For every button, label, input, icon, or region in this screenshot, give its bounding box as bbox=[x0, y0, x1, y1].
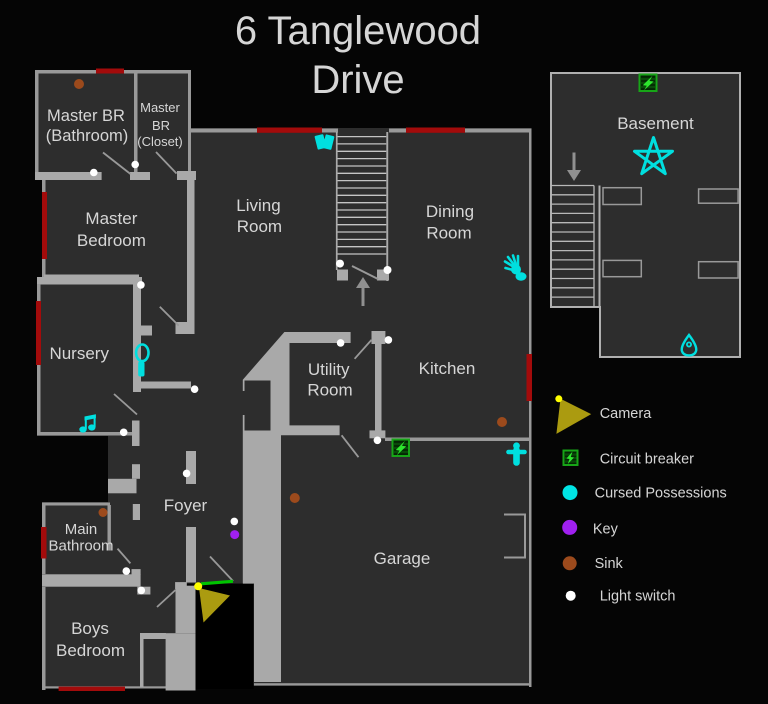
svg-text:Nursery: Nursery bbox=[49, 344, 109, 363]
svg-text:Sink: Sink bbox=[595, 556, 624, 572]
svg-text:Foyer: Foyer bbox=[164, 496, 208, 515]
svg-text:Utility: Utility bbox=[308, 360, 350, 379]
svg-text:Living: Living bbox=[236, 196, 280, 215]
svg-text:Key: Key bbox=[593, 522, 619, 538]
svg-text:Bathroom: Bathroom bbox=[48, 538, 113, 555]
svg-text:BR: BR bbox=[152, 118, 170, 133]
svg-text:Camera: Camera bbox=[600, 406, 653, 422]
svg-text:Boys: Boys bbox=[71, 619, 109, 638]
svg-text:Room: Room bbox=[307, 381, 352, 400]
svg-text:Basement: Basement bbox=[617, 114, 694, 133]
svg-text:Cursed Possessions: Cursed Possessions bbox=[595, 486, 727, 502]
svg-text:Main: Main bbox=[65, 521, 98, 538]
svg-text:(Bathroom): (Bathroom) bbox=[46, 127, 129, 145]
svg-text:Dining: Dining bbox=[426, 202, 474, 221]
svg-text:Light switch: Light switch bbox=[600, 589, 676, 605]
svg-text:Kitchen: Kitchen bbox=[419, 359, 476, 378]
svg-text:Master: Master bbox=[140, 100, 180, 115]
svg-text:Circuit breaker: Circuit breaker bbox=[600, 452, 694, 468]
svg-text:Drive: Drive bbox=[311, 58, 404, 102]
svg-text:Room: Room bbox=[237, 217, 282, 236]
svg-text:Garage: Garage bbox=[374, 549, 431, 568]
svg-text:6 Tanglewood: 6 Tanglewood bbox=[235, 9, 481, 53]
svg-text:Room: Room bbox=[426, 224, 471, 243]
svg-text:Master: Master bbox=[85, 209, 137, 228]
svg-text:Bedroom: Bedroom bbox=[56, 641, 125, 660]
svg-text:(Closet): (Closet) bbox=[137, 134, 183, 149]
svg-text:Bedroom: Bedroom bbox=[77, 231, 146, 250]
svg-text:Master BR: Master BR bbox=[47, 107, 125, 125]
